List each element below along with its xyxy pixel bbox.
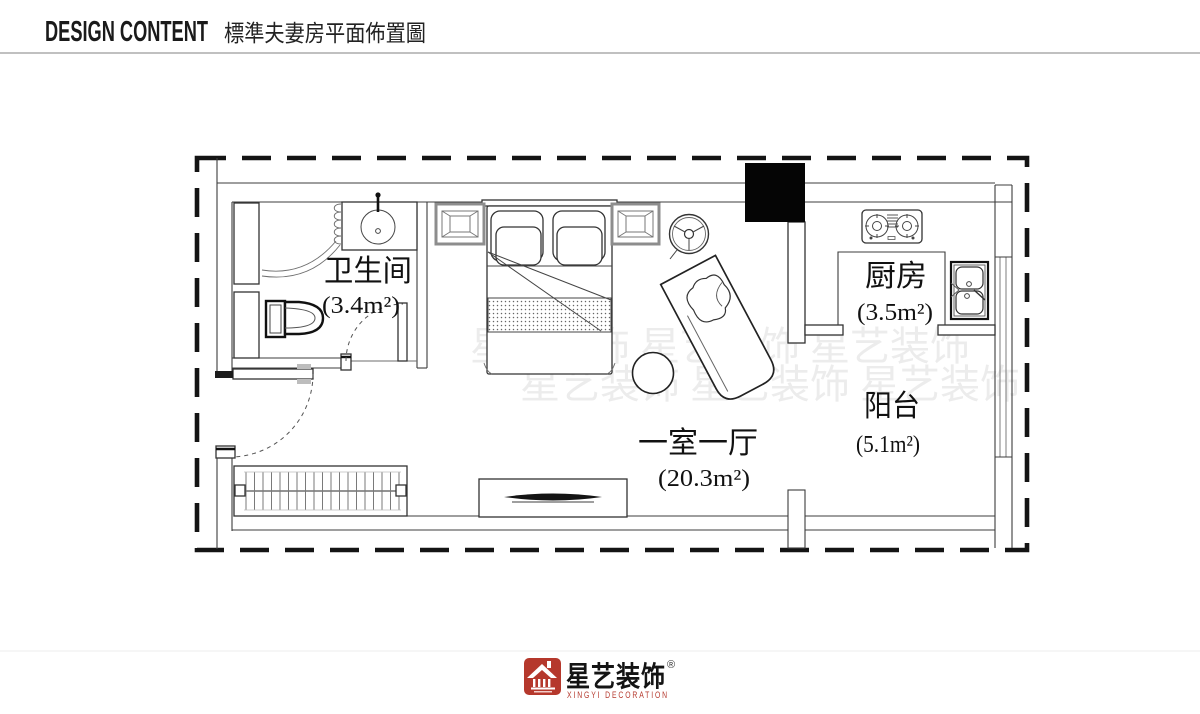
headboard xyxy=(482,200,617,206)
pillow xyxy=(496,227,541,265)
balcony-wall-stub xyxy=(788,490,805,548)
footer: 星艺装饰 ® XINGYI DECORATION xyxy=(0,651,1200,701)
living-room-label: 一室一厅 xyxy=(638,427,758,460)
door-swing-arc xyxy=(230,374,313,457)
kitchen-wall-stub xyxy=(805,325,843,335)
pillow xyxy=(557,227,602,265)
balcony-area: (5.1m²) xyxy=(856,432,920,458)
door-handle xyxy=(297,364,311,369)
ceiling-fan-icon xyxy=(670,215,709,260)
kitchen-area: (3.5m²) xyxy=(857,300,933,326)
toilet xyxy=(266,301,323,337)
balcony-label: 阳台 xyxy=(864,390,920,423)
nightstand xyxy=(612,204,659,244)
bathroom-cabinet xyxy=(234,292,259,358)
double-bed xyxy=(482,200,617,374)
living-room-area: (20.3m²) xyxy=(658,466,750,492)
brand-name-zh: 星艺装饰 xyxy=(566,661,666,692)
bathroom-sink xyxy=(342,192,417,250)
tv-cabinet xyxy=(479,479,627,517)
header: DESIGN CONTENT 標準夫妻房平面佈置圖 xyxy=(0,16,1200,53)
bathroom-cabinet xyxy=(234,203,259,284)
kitchen-label: 厨房 xyxy=(865,260,927,293)
kitchen-wall-stub xyxy=(938,325,995,335)
stove xyxy=(862,210,922,243)
floor-plan-canvas: DESIGN CONTENT 標準夫妻房平面佈置圖 星艺装饰 星艺装饰 星艺装饰… xyxy=(0,0,1200,714)
nightstand xyxy=(436,204,484,244)
page-title: DESIGN CONTENT xyxy=(45,16,208,48)
kitchen-sink xyxy=(951,262,988,319)
structural-column xyxy=(745,163,805,222)
bed-runner xyxy=(488,298,611,332)
shower-curtain-icon xyxy=(334,204,341,244)
registered-mark: ® xyxy=(667,659,675,671)
brand-name-en: XINGYI DECORATION xyxy=(567,690,669,701)
bathroom: 卫生间 (3.4m²) xyxy=(234,192,417,370)
entrance-door xyxy=(215,364,313,458)
kitchen-wall xyxy=(788,222,805,343)
round-stool xyxy=(633,353,674,394)
door-hinge xyxy=(215,371,233,378)
page-subtitle: 標準夫妻房平面佈置圖 xyxy=(224,21,426,46)
balcony-window xyxy=(995,257,1012,457)
brand-logo-icon xyxy=(524,658,561,695)
bathroom-area: (3.4m²) xyxy=(322,293,400,319)
radiator xyxy=(234,466,407,516)
bathroom-label: 卫生间 xyxy=(324,255,412,288)
